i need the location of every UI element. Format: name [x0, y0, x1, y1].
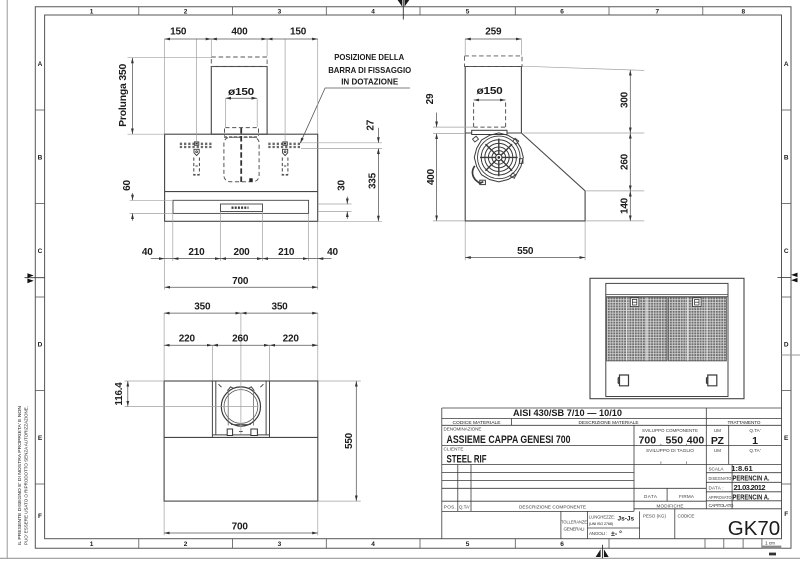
- svg-text:30: 30: [336, 180, 347, 191]
- svg-text:1: 1: [90, 8, 94, 15]
- svg-text:1: 1: [90, 541, 94, 548]
- svg-text:PERENCIN A.: PERENCIN A.: [733, 476, 770, 483]
- svg-text:C: C: [784, 248, 789, 255]
- svg-text:4: 4: [371, 8, 375, 15]
- svg-text:40: 40: [142, 247, 153, 258]
- svg-text:Prolunga 350: Prolunga 350: [118, 63, 129, 127]
- svg-text:DISEGNATO: DISEGNATO: [709, 476, 732, 481]
- svg-text:4: 4: [371, 541, 375, 548]
- svg-text:TRATTAMENTO: TRATTAMENTO: [728, 420, 761, 425]
- svg-text:6: 6: [560, 541, 564, 548]
- svg-text:550: 550: [666, 435, 684, 447]
- svg-text:2: 2: [184, 8, 188, 15]
- svg-text:CODICE MATERIALE: CODICE MATERIALE: [453, 420, 501, 425]
- svg-text:E: E: [38, 435, 43, 442]
- svg-text:A: A: [38, 61, 43, 68]
- svg-text:DATA: DATA: [644, 494, 658, 499]
- svg-text:PERENCIN A.: PERENCIN A.: [733, 494, 770, 501]
- svg-text:Js-Js: Js-Js: [618, 516, 635, 523]
- svg-text:700: 700: [232, 522, 249, 533]
- svg-text:CODICE: CODICE: [678, 514, 695, 519]
- svg-text:300: 300: [620, 91, 631, 108]
- svg-text:200: 200: [233, 247, 250, 258]
- svg-text:Q.TA': Q.TA': [749, 448, 760, 453]
- svg-text:PESO (KG): PESO (KG): [643, 514, 666, 519]
- svg-text:STEEL RIF: STEEL RIF: [447, 453, 487, 465]
- svg-text:DESCRIZIONE COMPONENTE: DESCRIZIONE COMPONENTE: [519, 505, 586, 510]
- svg-text:B: B: [38, 154, 43, 161]
- svg-text:B: B: [784, 154, 789, 161]
- svg-text:GENERALI: GENERALI: [564, 527, 585, 532]
- svg-text:1 cm: 1 cm: [765, 541, 775, 546]
- svg-text:TOLLERANZE: TOLLERANZE: [561, 520, 587, 525]
- svg-text:BARRA DI FISSAGGIO: BARRA DI FISSAGGIO: [328, 65, 411, 75]
- svg-text:ø150: ø150: [477, 86, 504, 97]
- svg-text:Q.TA': Q.TA': [749, 428, 760, 433]
- svg-text:LUNGHEZZE:: LUNGHEZZE:: [589, 515, 615, 520]
- svg-text:700: 700: [232, 276, 249, 287]
- svg-text:1:8.61: 1:8.61: [731, 464, 752, 473]
- svg-text:8: 8: [741, 8, 745, 15]
- svg-text:E: E: [784, 435, 789, 442]
- svg-text:6: 6: [560, 8, 564, 15]
- svg-text:350: 350: [271, 302, 288, 313]
- svg-text:260: 260: [232, 334, 249, 345]
- svg-text:UM: UM: [714, 448, 721, 453]
- svg-text:APPROVATO: APPROVATO: [709, 495, 732, 500]
- svg-text:27: 27: [365, 119, 376, 130]
- svg-text:PUO' ESSERE USATO O RIPRODOTTO: PUO' ESSERE USATO O RIPRODOTTO SENZA AUT…: [24, 406, 29, 545]
- svg-text:A: A: [784, 61, 789, 68]
- svg-text:D: D: [784, 341, 789, 348]
- svg-text:2: 2: [184, 541, 188, 548]
- svg-text:ø150: ø150: [228, 87, 255, 98]
- svg-text:1: 1: [752, 435, 758, 447]
- svg-text:GK70: GK70: [728, 517, 780, 540]
- svg-text:±- °: ±- °: [611, 530, 622, 538]
- svg-text:150: 150: [170, 27, 187, 38]
- svg-text:DESCRIZIONE MATERIALE: DESCRIZIONE MATERIALE: [579, 420, 639, 425]
- svg-text:40: 40: [327, 247, 338, 258]
- svg-text:116.4: 116.4: [114, 382, 125, 406]
- svg-text:210: 210: [278, 247, 295, 258]
- svg-text:150: 150: [290, 27, 307, 38]
- svg-text:IN DOTAZIONE: IN DOTAZIONE: [341, 77, 398, 87]
- svg-text:UM: UM: [714, 428, 721, 433]
- svg-text:SVILUPPO COMPONENTE: SVILUPPO COMPONENTE: [642, 428, 698, 433]
- svg-text:F: F: [784, 511, 788, 518]
- svg-text:335: 335: [368, 172, 379, 189]
- svg-text:ANGOLI :: ANGOLI :: [589, 531, 607, 536]
- svg-text:400: 400: [231, 27, 248, 38]
- svg-text:IL PRESENTE DISEGNO E' DI NOST: IL PRESENTE DISEGNO E' DI NOSTRA PROPRIE…: [17, 406, 22, 545]
- svg-text:220: 220: [179, 334, 196, 345]
- svg-text:3: 3: [278, 8, 282, 15]
- svg-text:ASSIEME CAPPA GENESI 700: ASSIEME CAPPA GENESI 700: [447, 434, 571, 446]
- svg-text:SCALA: SCALA: [709, 466, 725, 471]
- svg-text:D: D: [38, 341, 43, 348]
- svg-text:SVILUPPO DI TAGLIO: SVILUPPO DI TAGLIO: [646, 448, 694, 453]
- svg-text:CAPITOLATO: CAPITOLATO: [709, 503, 734, 508]
- svg-text:550: 550: [344, 432, 355, 449]
- svg-text:AISI 430/SB 7/10 — 10/10: AISI 430/SB 7/10 — 10/10: [513, 408, 622, 419]
- svg-text:POSIZIONE DELLA: POSIZIONE DELLA: [334, 52, 404, 62]
- svg-text:210: 210: [188, 247, 205, 258]
- svg-text:140: 140: [620, 197, 631, 214]
- svg-text:DENOMINAZIONE: DENOMINAZIONE: [444, 427, 482, 432]
- svg-text:400: 400: [426, 168, 437, 185]
- svg-text:3: 3: [278, 541, 282, 548]
- svg-text:POS.: POS.: [444, 505, 456, 510]
- svg-text:29: 29: [425, 93, 436, 104]
- svg-text:PZ: PZ: [711, 435, 725, 447]
- svg-text:400: 400: [687, 435, 705, 447]
- svg-text:C: C: [38, 248, 43, 255]
- svg-text:7: 7: [655, 8, 659, 15]
- svg-text:CLIENTE: CLIENTE: [444, 447, 464, 452]
- svg-text:260: 260: [620, 153, 631, 170]
- svg-text:F: F: [38, 513, 42, 520]
- svg-text:259: 259: [485, 27, 502, 38]
- svg-text:FIRMA: FIRMA: [679, 494, 695, 499]
- svg-text:5: 5: [466, 8, 470, 15]
- svg-text:21.03.2012: 21.03.2012: [734, 483, 766, 492]
- svg-text:700: 700: [639, 435, 657, 447]
- svg-text:5: 5: [466, 541, 470, 548]
- svg-text:60: 60: [122, 180, 133, 191]
- svg-text:DATA :: DATA :: [709, 486, 724, 491]
- svg-text:MODIFICHE: MODIFICHE: [657, 503, 684, 508]
- svg-text:350: 350: [194, 302, 211, 313]
- svg-text:220: 220: [283, 334, 300, 345]
- svg-text:550: 550: [517, 246, 534, 257]
- svg-text:(UNI ISO 2768): (UNI ISO 2768): [589, 522, 614, 526]
- svg-text:Q.TA': Q.TA': [459, 505, 470, 510]
